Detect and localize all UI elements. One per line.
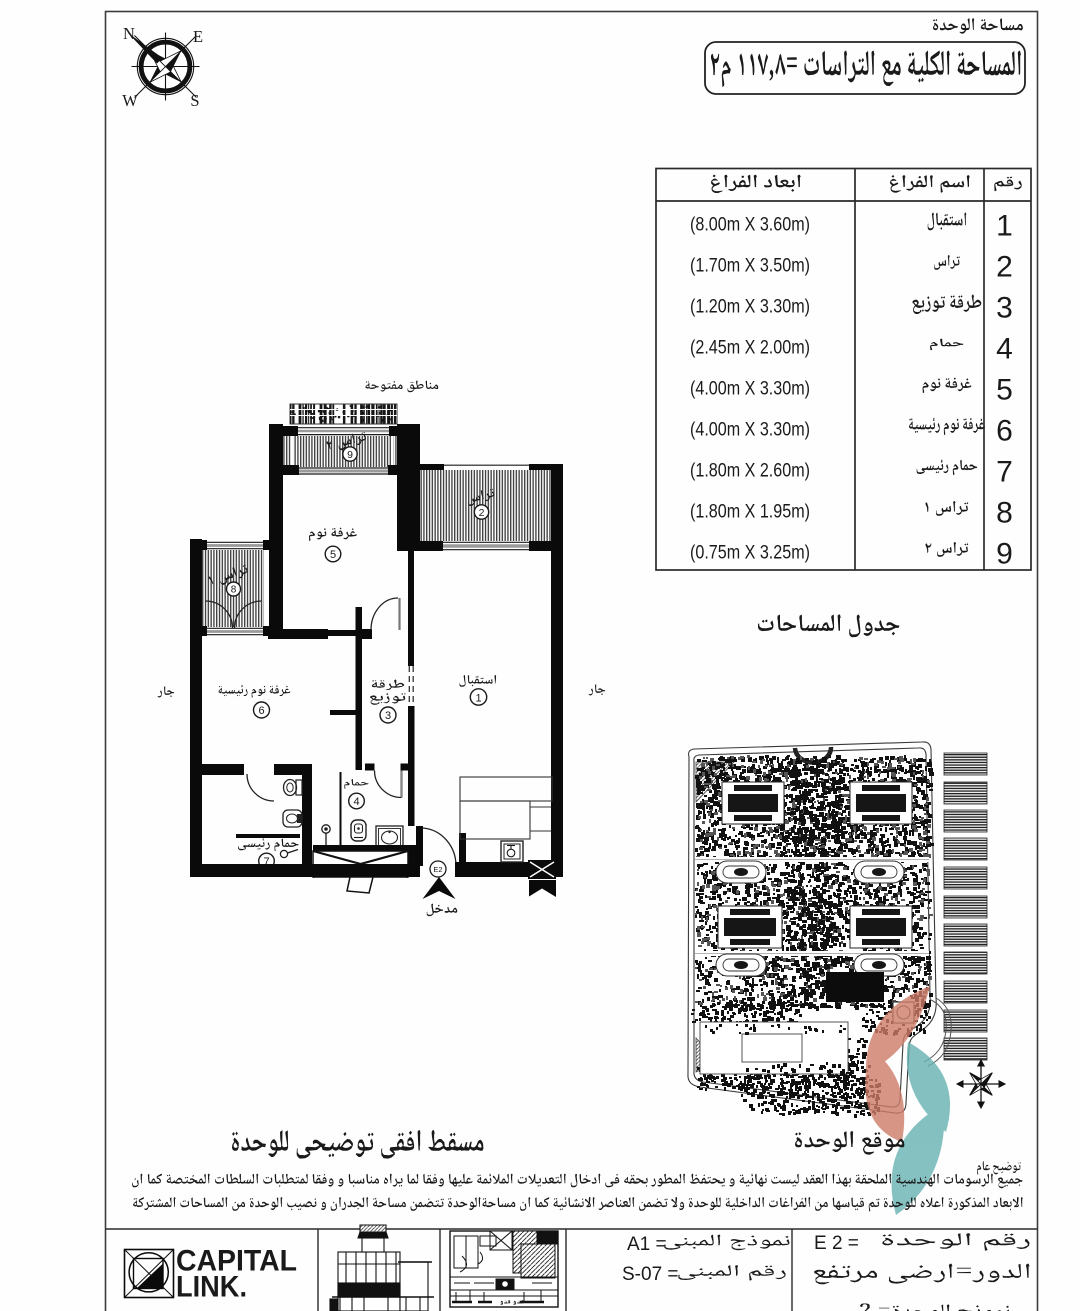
svg-text:LINK.: LINK.: [176, 1271, 247, 1304]
svg-text:N: N: [123, 24, 135, 43]
svg-text:W: W: [122, 91, 138, 110]
svg-text:9: 9: [347, 449, 353, 461]
svg-text:(4.00m X 3.30m): (4.00m X 3.30m): [690, 379, 810, 400]
svg-text:6: 6: [258, 705, 264, 717]
svg-text:2: 2: [996, 251, 1013, 284]
svg-text:6: 6: [996, 415, 1013, 448]
svg-text:2: 2: [479, 507, 485, 519]
svg-text:5: 5: [330, 549, 336, 561]
svg-text:E2: E2: [433, 865, 442, 874]
svg-text:8: 8: [231, 585, 237, 596]
svg-text:9: 9: [996, 538, 1013, 571]
svg-text:7: 7: [996, 456, 1013, 489]
svg-text:1: 1: [475, 692, 481, 704]
svg-text:E 2 =: E 2 =: [814, 1233, 859, 1254]
svg-text:5: 5: [996, 374, 1013, 407]
svg-text:(8.00m X 3.60m): (8.00m X 3.60m): [690, 215, 810, 236]
svg-text:8: 8: [996, 497, 1013, 530]
svg-text:(4.00m X 3.30m): (4.00m X 3.30m): [690, 420, 810, 441]
svg-text:S-07 =: S-07 =: [622, 1264, 679, 1285]
svg-text:3: 3: [996, 292, 1013, 325]
svg-text:E: E: [193, 27, 203, 46]
svg-text:1: 1: [996, 210, 1013, 243]
svg-text:S: S: [190, 91, 199, 110]
svg-text:3: 3: [385, 710, 391, 722]
svg-text:4: 4: [353, 796, 359, 808]
svg-text:(2.45m X 2.00m): (2.45m X 2.00m): [690, 338, 810, 359]
svg-text:(1.20m X 3.30m): (1.20m X 3.30m): [690, 297, 810, 318]
svg-text:4: 4: [996, 333, 1013, 366]
svg-text:(1.70m X 3.50m): (1.70m X 3.50m): [690, 256, 810, 277]
svg-text:(1.80m X 1.95m): (1.80m X 1.95m): [690, 502, 810, 523]
svg-text:A1 =: A1 =: [627, 1234, 667, 1255]
svg-text:(0.75m X 3.25m): (0.75m X 3.25m): [690, 543, 810, 564]
svg-text:(1.80m X 2.60m): (1.80m X 2.60m): [690, 461, 810, 482]
